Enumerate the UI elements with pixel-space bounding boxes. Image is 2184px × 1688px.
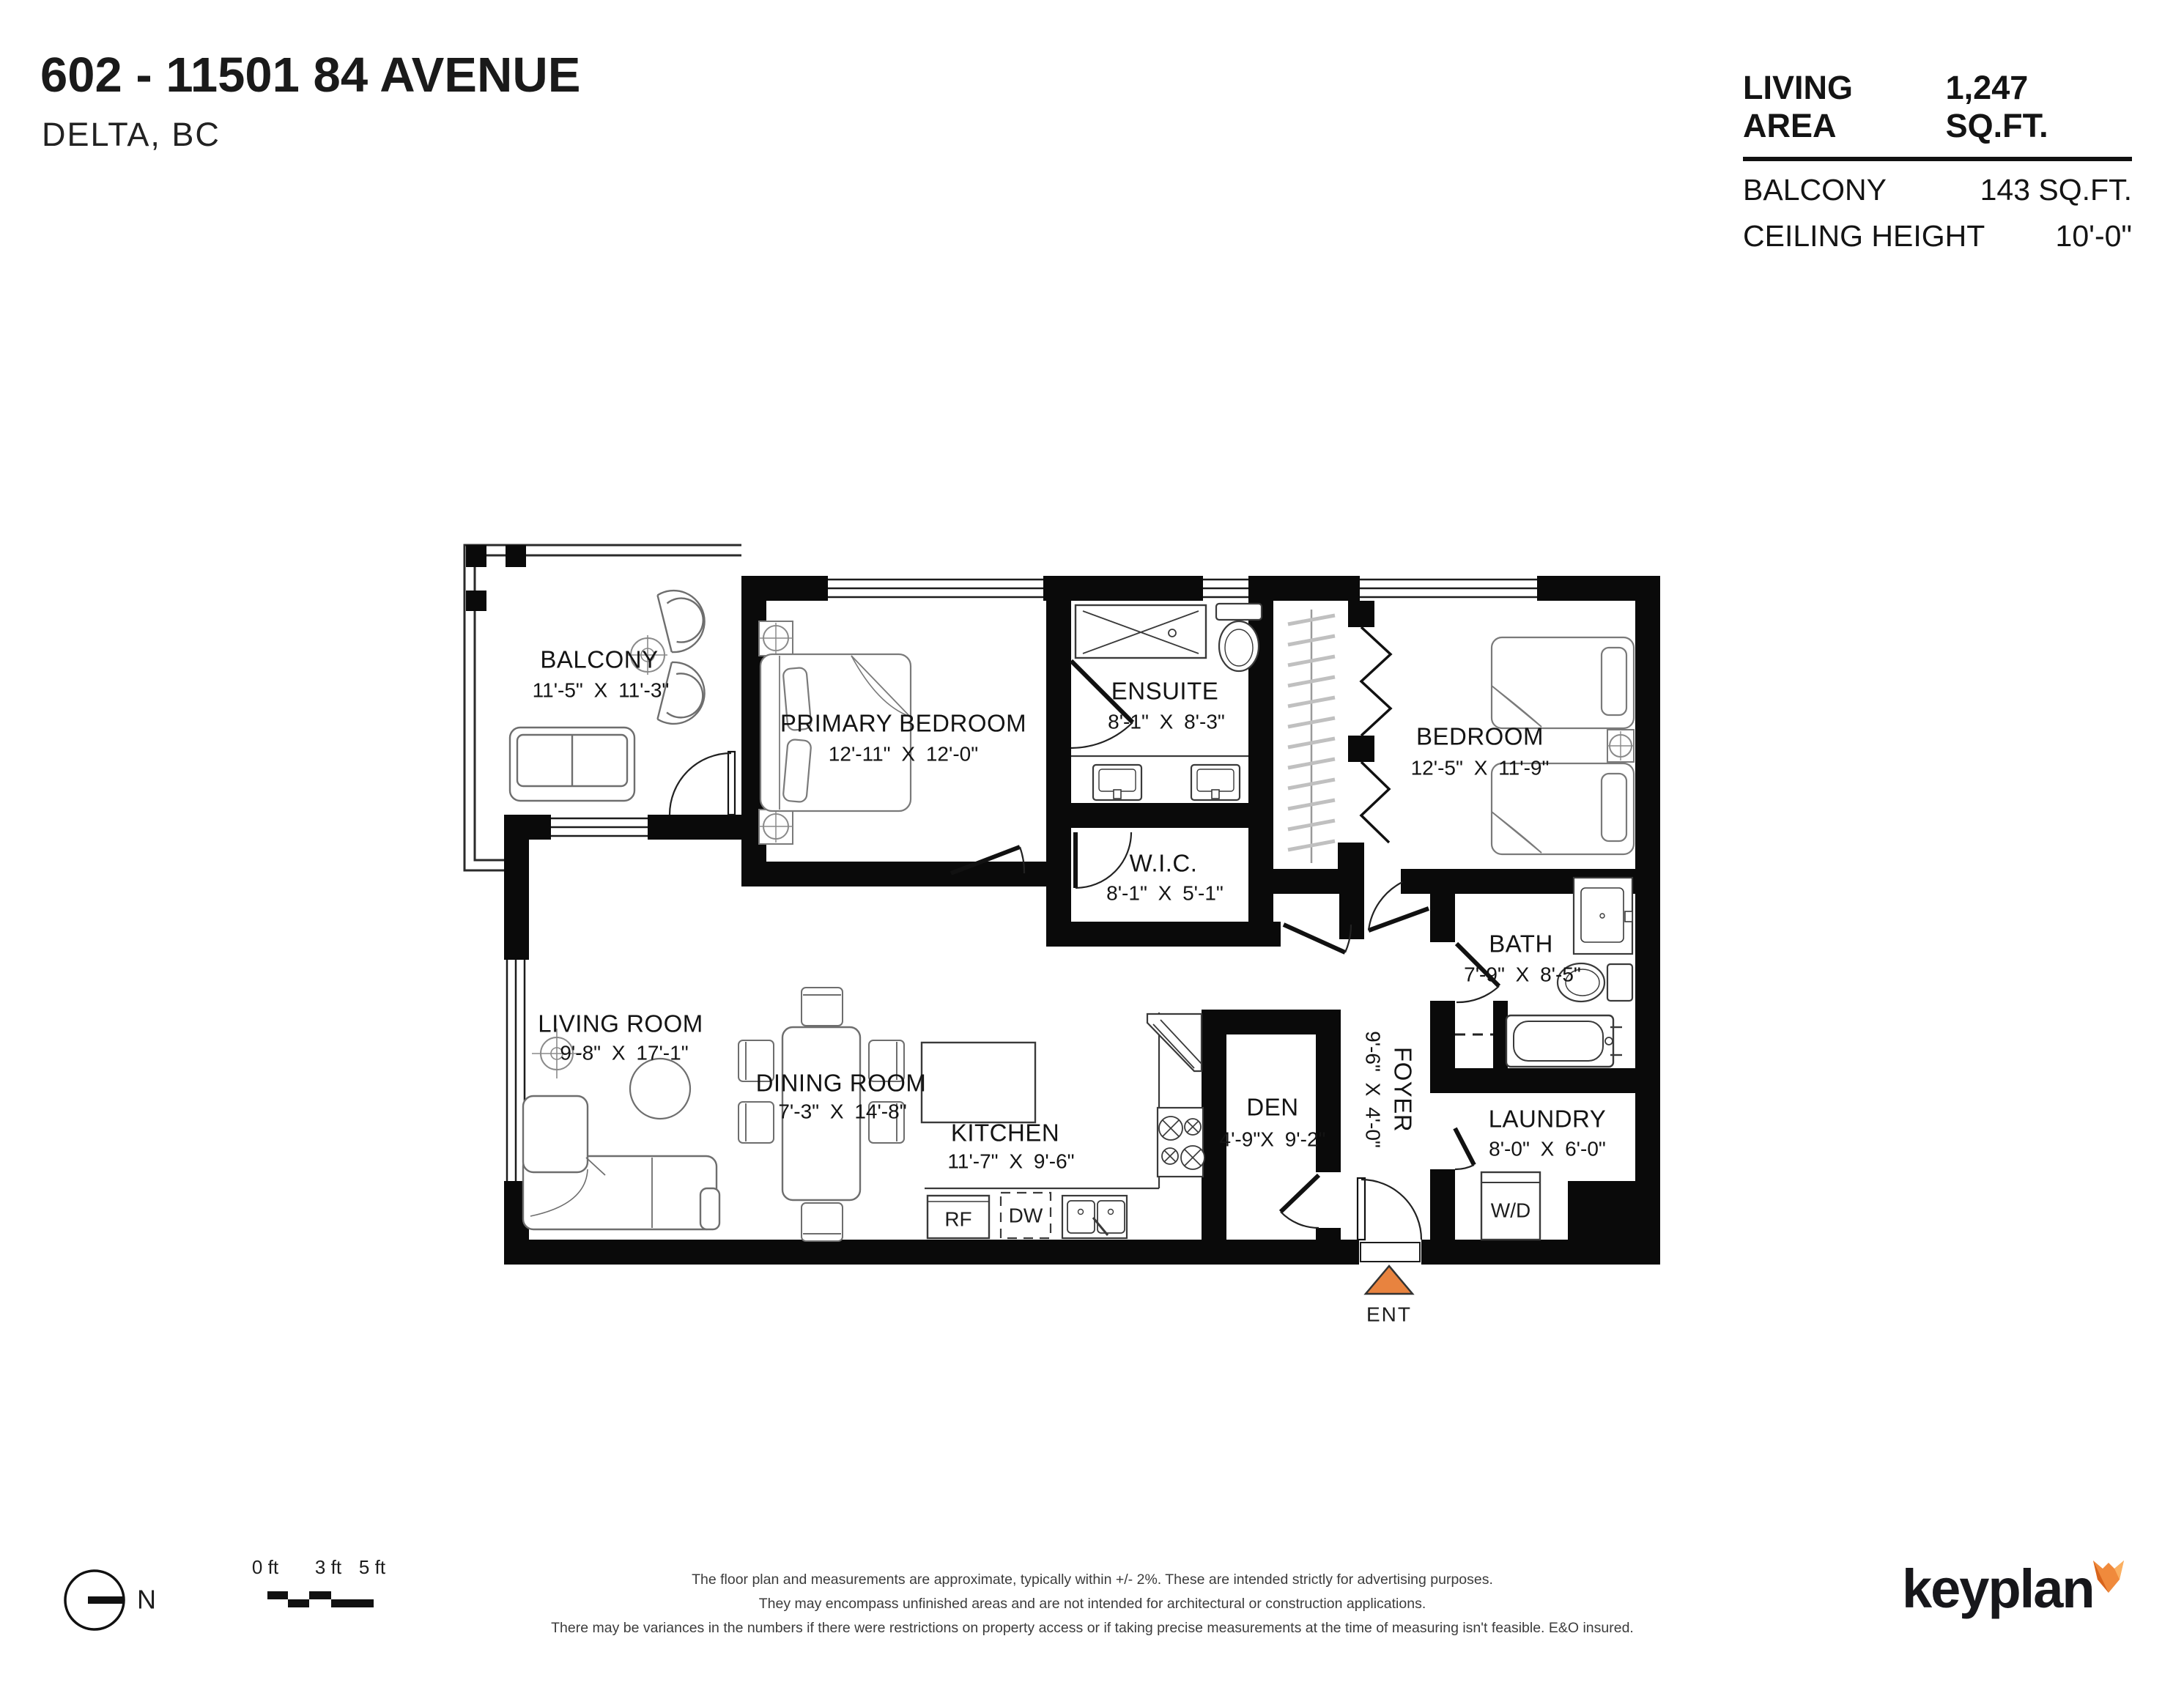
chair-icon — [802, 988, 843, 1026]
chair-icon — [802, 1203, 843, 1241]
room-label-kitchen: KITCHEN — [951, 1119, 1059, 1147]
room-dims-laundry: 8'-0" X 6'-0" — [1489, 1137, 1606, 1160]
nightstand-icon — [1607, 730, 1634, 762]
room-label-laundry: LAUNDRY — [1489, 1106, 1607, 1133]
floor-plan-page: { "header": { "title": "602 - 11501 84 A… — [0, 0, 2184, 1688]
room-dims-primary-bedroom: 12'-11" X 12'-0" — [829, 742, 978, 765]
ensuite-vanity-icon — [1071, 756, 1248, 800]
north-arrow-icon — [65, 1571, 124, 1629]
room-dims-bedroom: 12'-5" X 11'-9" — [1411, 756, 1550, 779]
room-dims-den: 4'-9"X 9'-2" — [1220, 1128, 1326, 1150]
floor-plan-drawing: W/D RF DW — [0, 0, 2184, 1688]
room-label-living-room: LIVING ROOM — [538, 1010, 703, 1037]
room-label-bedroom: BEDROOM — [1416, 723, 1544, 750]
bath-vanity-icon — [1574, 878, 1632, 954]
window-primary-bedroom — [828, 576, 1043, 601]
room-dims-foyer: 9'-6" X 4'-0" — [1362, 1031, 1385, 1148]
room-dims-wic: 8'-1" X 5'-1" — [1106, 881, 1224, 904]
pantry-icon — [1147, 1014, 1202, 1071]
coffee-table-icon — [630, 1059, 690, 1119]
bed-icon — [1492, 637, 1634, 728]
balcony-sofa-icon — [510, 728, 634, 801]
nightstand-icon — [759, 621, 793, 656]
stove-icon — [1158, 1108, 1204, 1177]
room-dims-ensuite: 8'-1" X 8'-3" — [1108, 710, 1225, 733]
room-label-ensuite: ENSUITE — [1111, 678, 1219, 705]
room-label-primary-bedroom: PRIMARY BEDROOM — [780, 710, 1026, 737]
entry-arrow-icon — [1366, 1266, 1413, 1294]
room-dims-dining-room: 7'-3" X 14'-8" — [778, 1100, 906, 1122]
balcony-chair-icon — [657, 584, 711, 654]
north-label: N — [137, 1585, 156, 1615]
scale-tick-3: 3 ft — [315, 1556, 342, 1578]
room-label-dining-room: DINING ROOM — [756, 1070, 927, 1097]
room-dims-living-room: 9'-8" X 17'-1" — [560, 1041, 688, 1064]
balcony-door — [670, 752, 735, 815]
kitchen-sink-icon — [1062, 1196, 1127, 1238]
window-ensuite — [1203, 576, 1248, 601]
room-label-foyer: FOYER — [1389, 1047, 1416, 1132]
room-label-balcony: BALCONY — [540, 646, 658, 673]
room-label-den: DEN — [1246, 1094, 1298, 1121]
entry-threshold — [1359, 1240, 1421, 1265]
keyplan-fox-icon — [2093, 1561, 2124, 1593]
nightstand-icon — [759, 810, 793, 844]
wic-door — [1076, 832, 1131, 888]
sectional-sofa-icon — [523, 1096, 719, 1229]
laundry-door — [1455, 1128, 1474, 1169]
den-door — [1281, 1175, 1319, 1228]
window-bedroom — [1360, 576, 1537, 601]
entry-door — [1358, 1178, 1421, 1240]
window-balcony-wall — [551, 815, 648, 840]
dishwasher-label: DW — [1009, 1204, 1043, 1226]
scale-tick-0: 0 ft — [252, 1556, 279, 1578]
fridge-label: RF — [944, 1207, 971, 1230]
room-label-bath: BATH — [1489, 930, 1553, 958]
chair-icon — [739, 1102, 774, 1143]
closet-rod-icon — [1288, 610, 1335, 863]
bathtub-icon — [1506, 1015, 1622, 1067]
kitchen-island — [922, 1043, 1035, 1122]
scale-bar: 0 ft 3 ft 5 ft — [252, 1556, 386, 1607]
bifold-doors-icon — [1361, 627, 1391, 843]
room-dims-bath: 7'-9" X 8'-5" — [1464, 963, 1581, 985]
scale-tick-5: 5 ft — [359, 1556, 386, 1578]
entry-label: ENT — [1366, 1303, 1412, 1325]
toilet-icon — [1216, 604, 1262, 671]
shower-icon — [1076, 605, 1206, 658]
room-label-wic: W.I.C. — [1130, 850, 1198, 877]
room-dims-kitchen: 11'-7" X 9'-6" — [947, 1150, 1074, 1172]
washer-dryer-label: W/D — [1491, 1199, 1530, 1221]
room-dims-balcony: 11'-5" X 11'-3" — [533, 678, 670, 701]
entry-marker: ENT — [1366, 1266, 1413, 1325]
